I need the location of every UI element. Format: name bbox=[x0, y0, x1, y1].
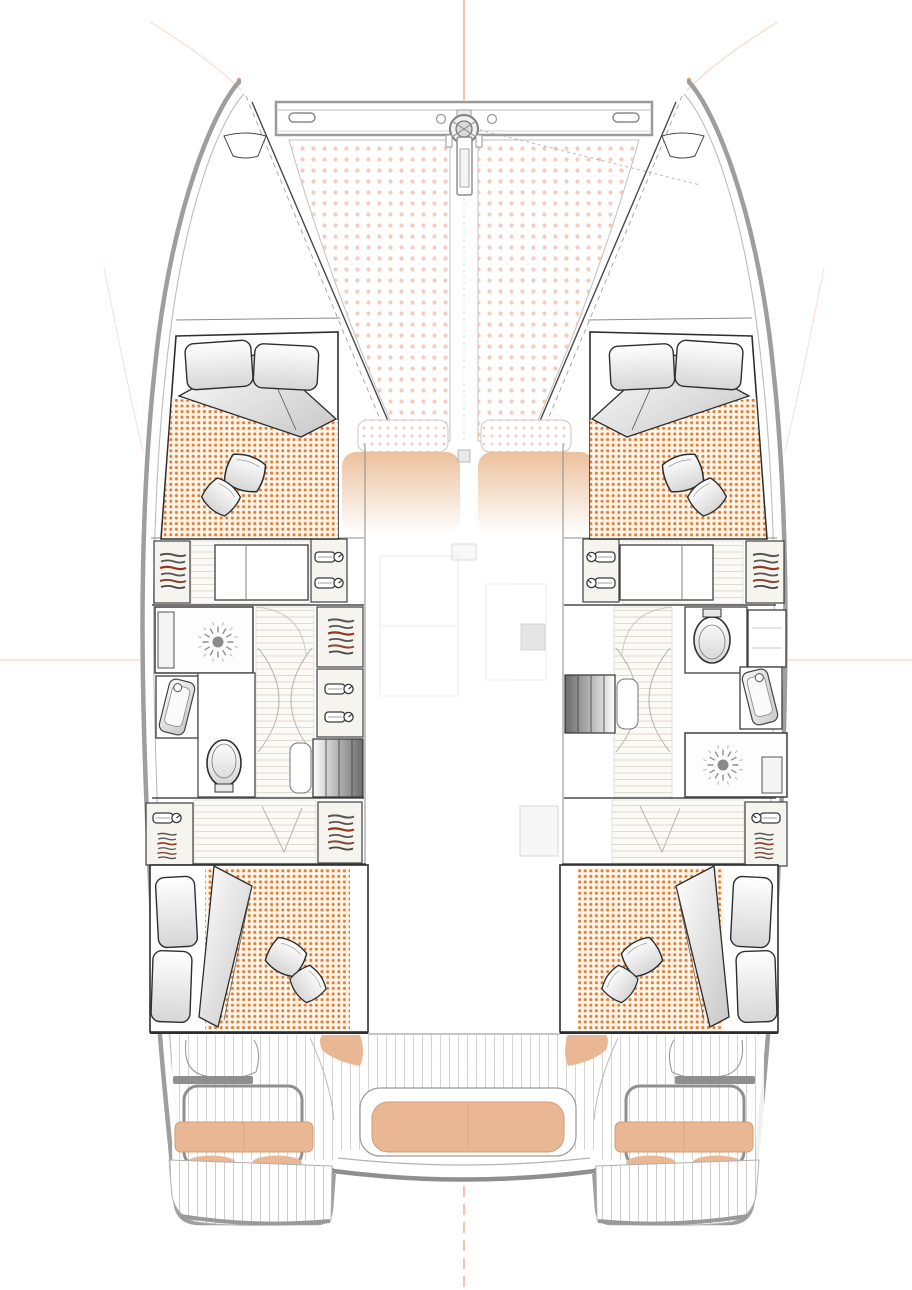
bed-forward-port bbox=[161, 332, 338, 539]
transom-steps-starboard bbox=[596, 1160, 759, 1225]
bed-aft-starboard bbox=[560, 865, 778, 1032]
pillow-icon bbox=[674, 340, 743, 390]
dresser-port bbox=[215, 545, 308, 600]
deck-fitting bbox=[488, 115, 497, 124]
hanger-icon bbox=[587, 578, 615, 588]
stair-door bbox=[290, 743, 311, 793]
dresser-starboard bbox=[620, 545, 713, 600]
companionway-stairs-starboard bbox=[565, 675, 638, 733]
foredeck-lounge bbox=[342, 420, 594, 534]
wardrobe-shelves-starboard-forward bbox=[746, 541, 784, 603]
showerhead-icon bbox=[198, 622, 238, 662]
galley-sink-ghost bbox=[521, 624, 545, 650]
cleat-icon bbox=[613, 113, 639, 122]
pillow-icon bbox=[151, 950, 192, 1022]
hanger-icon bbox=[315, 578, 343, 588]
cleat-icon bbox=[289, 113, 315, 122]
locker-lid bbox=[173, 1076, 253, 1084]
mast-post bbox=[458, 450, 470, 462]
shower-bench bbox=[762, 757, 782, 793]
pillow-icon bbox=[730, 876, 773, 948]
pillow-icon bbox=[155, 876, 198, 948]
catamaran-floor-plan bbox=[0, 0, 912, 1290]
nav-seat-ghost bbox=[520, 806, 558, 856]
pillow-icon bbox=[609, 343, 675, 390]
salon-ghost bbox=[365, 444, 563, 1070]
hanger-icon bbox=[315, 552, 343, 562]
shower-bench bbox=[158, 612, 174, 668]
floor-plan-canvas bbox=[0, 0, 912, 1290]
pillow-icon bbox=[736, 950, 777, 1022]
stair-door bbox=[617, 679, 638, 729]
wardrobe-hanging-port-mid bbox=[317, 669, 363, 737]
deck-fitting bbox=[437, 115, 446, 124]
pillow-icon bbox=[253, 343, 319, 390]
bathroom-starboard bbox=[685, 607, 787, 797]
stairs-icon bbox=[313, 739, 363, 797]
wardrobe-hanging-starboard-forward bbox=[583, 539, 619, 602]
wardrobe-shelves-port-mid bbox=[317, 607, 363, 667]
wardrobe-hanging-port-forward bbox=[311, 539, 347, 602]
hanger-icon bbox=[325, 712, 353, 722]
bed-aft-port bbox=[150, 865, 368, 1032]
bow-roller bbox=[446, 135, 482, 195]
wardrobe-shelves-port-aft bbox=[318, 802, 362, 863]
transom-steps-port bbox=[169, 1160, 332, 1225]
hanger-icon bbox=[752, 813, 780, 823]
pillow-icon bbox=[184, 340, 253, 390]
bath-cabinet-starboard bbox=[748, 610, 786, 667]
hanger-icon bbox=[153, 813, 181, 823]
bathroom-port bbox=[155, 607, 255, 797]
forward-lounge-seat-port bbox=[342, 452, 460, 534]
hanger-icon bbox=[325, 684, 353, 694]
hanger-icon bbox=[587, 552, 615, 562]
anchor-locker-hatch-starboard bbox=[662, 133, 704, 158]
forward-lounge-seat-starboard bbox=[478, 452, 594, 534]
mast-foot-ghost bbox=[452, 544, 476, 560]
anchor-locker-hatch-port bbox=[224, 133, 266, 158]
bed-forward-starboard bbox=[590, 332, 767, 539]
companionway-stairs-port bbox=[290, 739, 363, 797]
stairs-icon bbox=[565, 675, 615, 733]
showerhead-icon bbox=[703, 745, 743, 785]
locker-lid bbox=[675, 1076, 755, 1084]
wardrobe-shelves-port-forward bbox=[154, 541, 190, 603]
